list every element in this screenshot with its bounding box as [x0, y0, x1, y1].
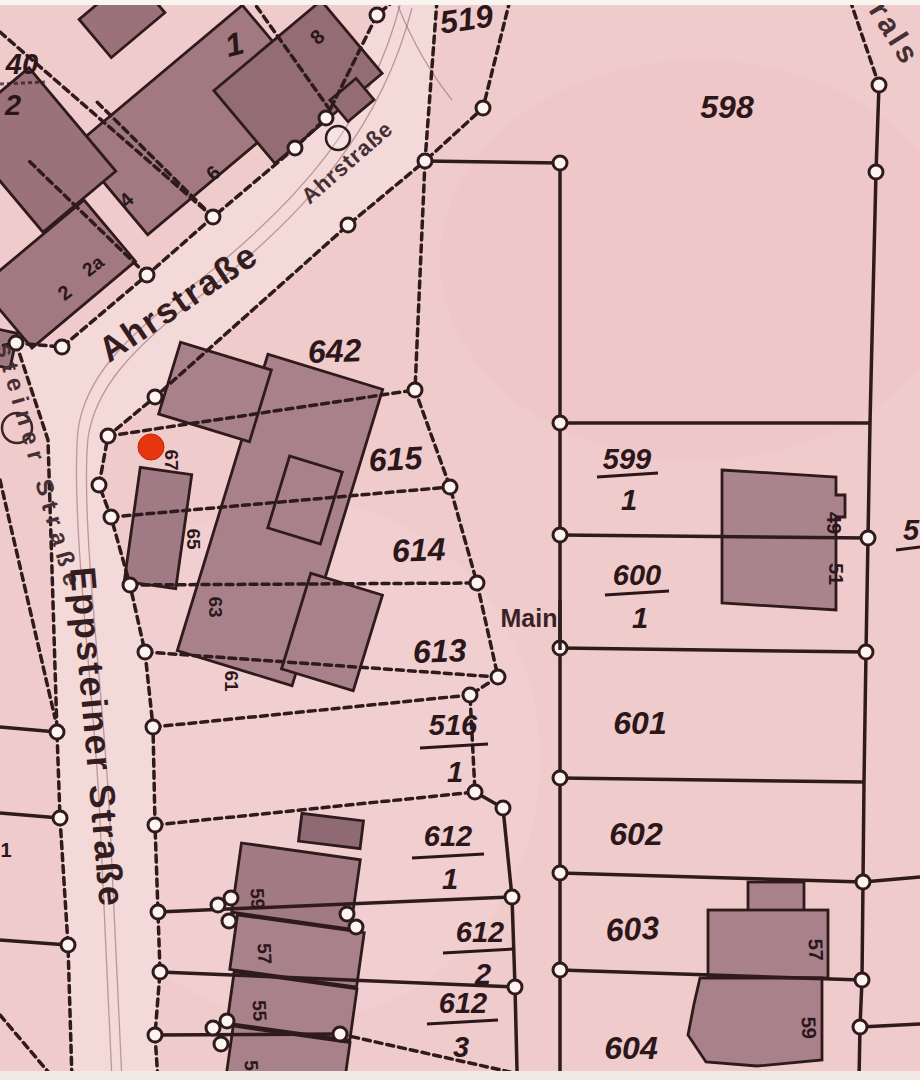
parcel-label-599-num: 599	[603, 443, 651, 475]
house-number-63: 63	[205, 596, 226, 617]
parcel-label-612-3-num: 612	[439, 987, 487, 1019]
parcel-label-612-1-den: 1	[442, 863, 458, 895]
parcel-label-612-1-num: 612	[424, 820, 472, 852]
house-number-57b: 57	[805, 938, 828, 961]
house-number-55: 55	[248, 1000, 270, 1023]
parcel-label-edge-partial: 5	[903, 514, 920, 546]
parcel-label-604: 604	[604, 1030, 658, 1066]
parcel-label-612-2-num: 612	[456, 916, 504, 948]
parcel-label-615: 615	[368, 440, 424, 479]
building	[299, 813, 364, 848]
parcel-label-614: 614	[391, 531, 446, 569]
house-number-59: 59	[246, 888, 268, 910]
parcel-label-40-den: 2	[4, 89, 21, 121]
parcel-label-613: 613	[412, 632, 467, 670]
parcel-label-600-den: 1	[632, 602, 648, 634]
building	[748, 882, 804, 912]
house-number-51: 51	[825, 563, 847, 585]
parcel-label-40-num: 40	[5, 48, 38, 80]
parcel-label-516-den: 1	[447, 756, 463, 788]
parcel-label-599-den: 1	[621, 484, 637, 516]
house-number-59b: 59	[798, 1016, 821, 1039]
parcel-label-642: 642	[307, 332, 362, 370]
house-number-61: 61	[221, 670, 242, 692]
map-canvas: 1 40 2 519 598 642 615 614 613 599 1 600…	[0, 0, 920, 1080]
house-number-67: 67	[161, 449, 182, 470]
parcel-label-612-3-den: 3	[453, 1031, 469, 1063]
scan-edge-top	[0, 0, 920, 5]
house-number-49: 49	[823, 512, 845, 534]
location-marker-dot	[138, 434, 164, 460]
parcel-label-603: 603	[605, 910, 660, 949]
scan-edge-bottom	[0, 1071, 920, 1080]
building-49-51	[722, 470, 845, 610]
house-number-57: 57	[253, 943, 275, 965]
parcel-label-edge-1: 1	[0, 839, 11, 861]
cadastral-map: 1 40 2 519 598 642 615 614 613 599 1 600…	[0, 0, 920, 1080]
parcel-label-516-num: 516	[429, 709, 478, 741]
parcel-label-612-2-den: 2	[474, 958, 491, 990]
parcel-label-600-num: 600	[613, 559, 661, 591]
parcel-label-601: 601	[613, 705, 666, 741]
house-number-65: 65	[183, 528, 204, 550]
street-label-main-partial: Main	[501, 604, 558, 632]
parcel-label-602: 602	[609, 816, 663, 852]
parcel-label-598: 598	[700, 89, 754, 125]
